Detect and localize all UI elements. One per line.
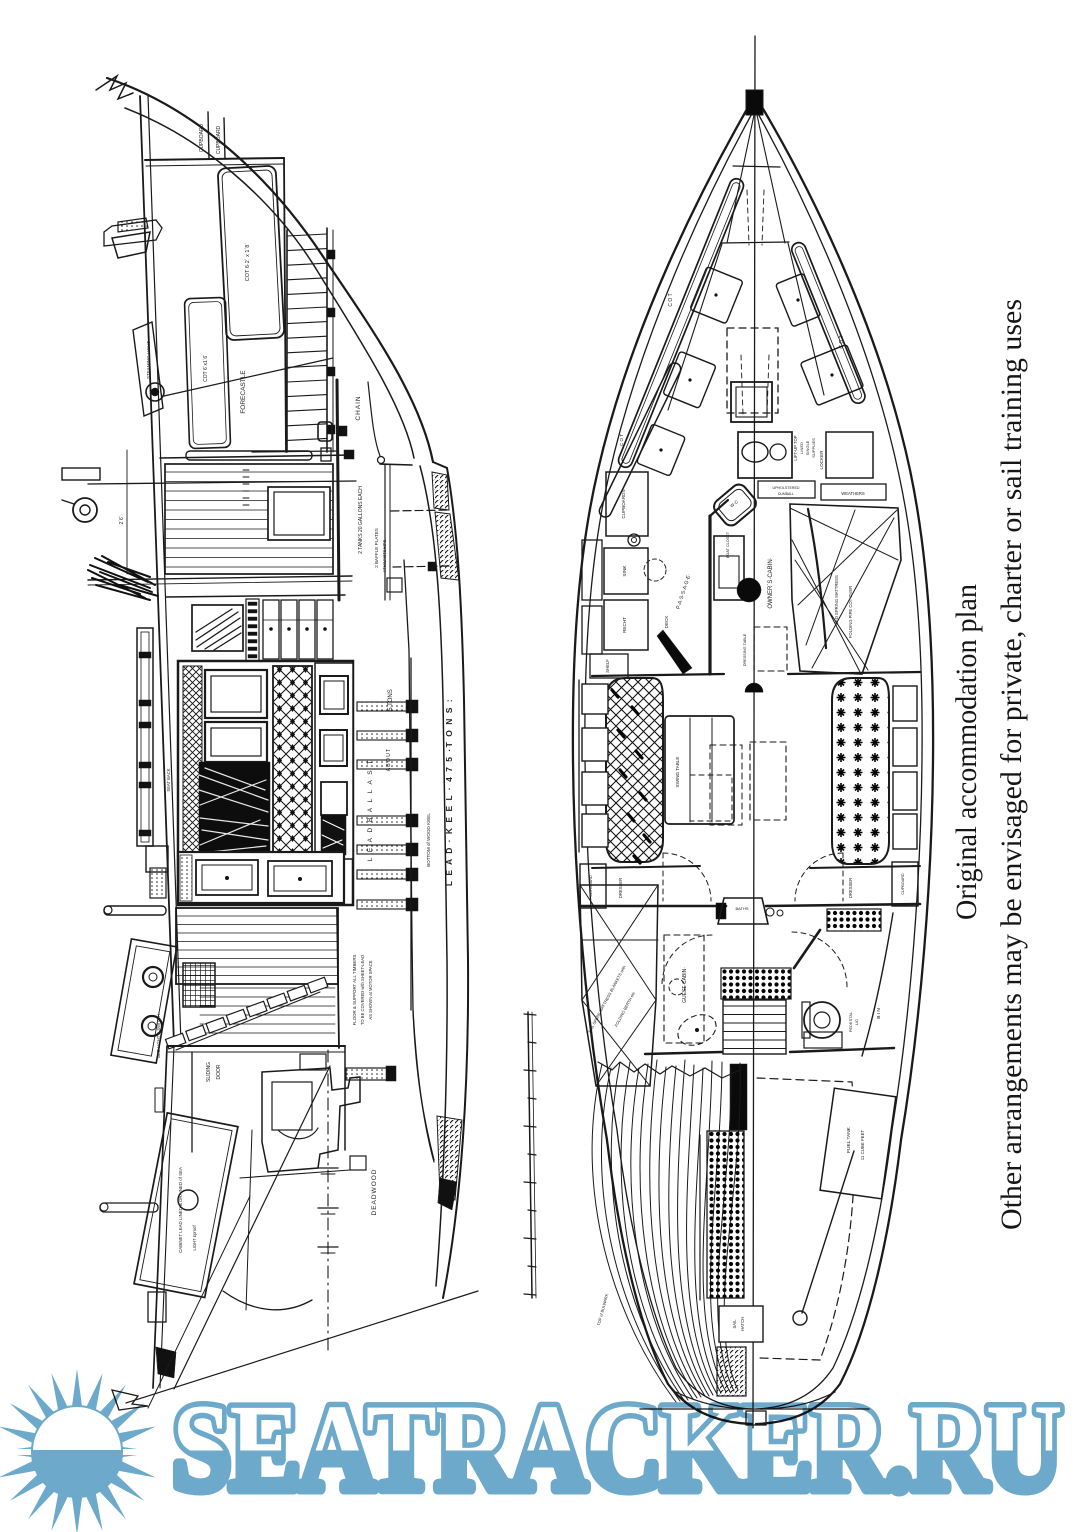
- svg-text:2 BAFFLE PLATES: 2 BAFFLE PLATES: [374, 528, 379, 568]
- svg-text:BATHS: BATHS: [735, 906, 748, 911]
- svg-text:BED LIGHT & SWITCH: BED LIGHT & SWITCH: [156, 1014, 161, 1058]
- svg-text:CABINET LEAD LINED & DRAINED: CABINET LEAD LINED & DRAINED of SEA: [178, 1167, 183, 1253]
- svg-text:C O T: C O T: [619, 434, 624, 446]
- svg-text:LIFT-UP TOP: LIFT-UP TOP: [793, 435, 798, 460]
- svg-text:LOCKER: LOCKER: [819, 450, 824, 470]
- svg-text:LID: LID: [855, 1019, 859, 1025]
- svg-text:SINK: SINK: [622, 565, 628, 577]
- svg-text:CUPBOARD: CUPBOARD: [216, 125, 222, 154]
- svg-text:PEDESTAL: PEDESTAL: [848, 1011, 853, 1032]
- svg-text:FLOOR & SUPPORT ALL TIMBERS: FLOOR & SUPPORT ALL TIMBERS: [352, 955, 357, 1026]
- svg-text:SEATRACKER.RU: SEATRACKER.RU: [172, 1379, 1061, 1516]
- svg-text:DOOR: DOOR: [216, 1064, 222, 1079]
- svg-text:Other arrangements may be envi: Other arrangements may be envisaged for …: [995, 299, 1028, 1230]
- svg-text:TO BE COVERED with SHEET-LEAD: TO BE COVERED with SHEET-LEAD: [360, 955, 365, 1025]
- svg-text:Original accommodation plan: Original accommodation plan: [950, 584, 983, 920]
- svg-text:FORECASTLE: FORECASTLE: [240, 370, 247, 414]
- svg-text:SUPPLIES: SUPPLIES: [811, 438, 816, 458]
- svg-text:FUEL TANK: FUEL TANK: [846, 1126, 852, 1153]
- svg-text:RECHT: RECHT: [622, 617, 627, 633]
- svg-text:2 TANKS 20 GALLONS EACH: 2 TANKS 20 GALLONS EACH: [358, 486, 364, 554]
- svg-text:SEAT BACK: SEAT BACK: [166, 768, 171, 791]
- svg-text:2´6´: 2´6´: [119, 515, 125, 524]
- svg-text:SHELF: SHELF: [605, 659, 610, 673]
- svg-text:DEADWOOD: DEADWOOD: [371, 1169, 378, 1216]
- svg-text:DRESSER: DRESSER: [848, 878, 853, 898]
- svg-text:CUPBOARDS: CUPBOARDS: [621, 489, 626, 518]
- svg-text:BED SPRING MATTRESS: BED SPRING MATTRESS: [834, 575, 839, 625]
- svg-text:COT 6´x1´6´: COT 6´x1´6´: [203, 354, 209, 382]
- svg-text:OWNER´S·CABIN·: OWNER´S·CABIN·: [768, 557, 774, 608]
- svg-text:BOTTOM of WOOD KEEL: BOTTOM of WOOD KEEL: [426, 813, 431, 867]
- svg-text:GUEST·CABIN·: GUEST·CABIN·: [682, 967, 688, 1003]
- svg-text:LINED: LINED: [799, 442, 804, 454]
- svg-text:C O T: C O T: [668, 293, 674, 306]
- svg-text:FOLDING PIPE COT OVER: FOLDING PIPE COT OVER: [848, 586, 853, 638]
- svg-text:11 CUBE FEET: 11 CUBE FEET: [860, 1129, 865, 1160]
- svg-text:DRESSER: DRESSER: [618, 878, 623, 898]
- svg-text:CHAIN: CHAIN: [355, 395, 362, 420]
- svg-text:SAIL: SAIL: [732, 1319, 737, 1329]
- svg-text:SINGLE: SINGLE: [805, 440, 810, 455]
- svg-text:CUPBOARD: CUPBOARD: [199, 123, 205, 152]
- svg-text:CUPBOARD: CUPBOARD: [589, 875, 593, 897]
- svg-text:DECK: DECK: [664, 615, 669, 629]
- svg-text:SWING TABLE: SWING TABLE: [675, 757, 680, 788]
- svg-text:DUMBALL: DUMBALL: [778, 492, 794, 496]
- svg-text:AS SHOWN at MOTOR SPACE: AS SHOWN at MOTOR SPACE: [368, 960, 373, 1019]
- svg-text:B I N ·: B I N ·: [876, 1005, 882, 1019]
- svg-text:CUPBOARD: CUPBOARD: [901, 873, 905, 895]
- svg-text:SLIDING: SLIDING: [206, 1062, 212, 1082]
- svg-text:L E A D · K E E L · 4 7 5 ·T: L E A D · K E E L · 4 7 5 ·T O N S :: [444, 698, 454, 886]
- svg-text:5 TONS: 5 TONS: [388, 689, 394, 710]
- svg-text:BOAT CLOSET: BOAT CLOSET: [726, 531, 730, 558]
- svg-text:L E A D B A L L A S T: L E A D B A L L A S T: [367, 759, 374, 862]
- svg-text:LIGHT £proof: LIGHT £proof: [192, 1225, 197, 1251]
- svg-text:STEAMING LIGHT: STEAMING LIGHT: [146, 341, 151, 379]
- svg-text:A B O U T: A B O U T: [386, 749, 392, 771]
- svg-text:UPHOLSTERED: UPHOLSTERED: [773, 486, 800, 490]
- svg-text:DRESSING TABLE: DRESSING TABLE: [743, 633, 747, 666]
- svg-text:COT 6·2´ x 1´8´: COT 6·2´ x 1´8´: [245, 243, 251, 282]
- svg-text:HATCH: HATCH: [740, 1317, 745, 1331]
- svg-text:WEATHERS: WEATHERS: [841, 491, 865, 496]
